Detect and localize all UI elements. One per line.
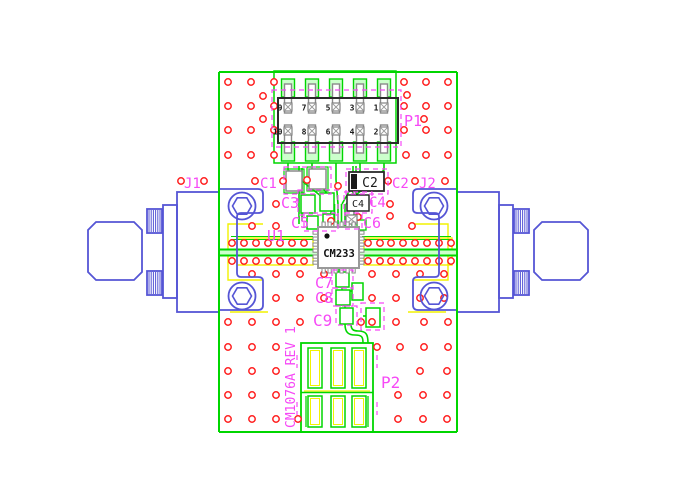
via [421, 344, 427, 350]
via [225, 127, 231, 133]
via [273, 344, 279, 350]
p1-pin-number: 3 [350, 104, 355, 113]
via [304, 177, 310, 183]
via [388, 240, 394, 246]
via [248, 127, 254, 133]
via [420, 416, 426, 422]
c3-pad-1 [301, 195, 315, 213]
via [442, 178, 448, 184]
label-j2: J2 [419, 176, 436, 192]
via [420, 392, 426, 398]
via [273, 368, 279, 374]
via [400, 258, 406, 264]
via [395, 416, 401, 422]
via [424, 240, 430, 246]
label-u1: U1 [267, 227, 285, 245]
via [248, 152, 254, 158]
label-p1: P1 [404, 112, 422, 130]
via [271, 79, 277, 85]
via [301, 240, 307, 246]
ic-u1: CM233 [313, 222, 364, 273]
via [369, 319, 375, 325]
via [225, 368, 231, 374]
via [271, 152, 277, 158]
via [249, 319, 255, 325]
via [260, 93, 266, 99]
label-c9: C9 [313, 311, 332, 330]
via [444, 392, 450, 398]
via [369, 295, 375, 301]
via [393, 319, 399, 325]
via [365, 258, 371, 264]
label-c5: C5 [291, 214, 309, 232]
via [297, 271, 303, 277]
via [265, 258, 271, 264]
via [241, 240, 247, 246]
via [387, 201, 393, 207]
j1-thread-texture [149, 210, 160, 294]
via [387, 213, 393, 219]
p1-pin-number: 4 [350, 128, 355, 137]
via [423, 127, 429, 133]
via [409, 223, 415, 229]
via [273, 392, 279, 398]
via [400, 240, 406, 246]
aux-pad-1 [352, 283, 363, 300]
label-c6: C6 [363, 214, 381, 232]
via [225, 79, 231, 85]
via [377, 258, 383, 264]
via [225, 392, 231, 398]
via [273, 201, 279, 207]
via [289, 258, 295, 264]
j1-step [163, 205, 177, 298]
j1-nut [88, 222, 142, 280]
via [241, 258, 247, 264]
via [412, 258, 418, 264]
c9-pad [340, 308, 353, 324]
p1-pin-number: 2 [374, 128, 379, 137]
via [280, 178, 286, 184]
via [249, 368, 255, 374]
via [388, 258, 394, 264]
via [229, 240, 235, 246]
via [289, 240, 295, 246]
via [423, 103, 429, 109]
via [225, 344, 231, 350]
c8-pad [336, 290, 350, 305]
ic-marking: CM233 [323, 248, 355, 260]
via [444, 416, 450, 422]
via [401, 103, 407, 109]
p1-pin-number: 10 [273, 128, 283, 137]
c1-pad-1 [286, 171, 302, 191]
via [248, 103, 254, 109]
via [253, 258, 259, 264]
via [201, 178, 207, 184]
pcb-cad-drawing: 91078563412 C2 C4 CM233 [0, 0, 700, 500]
c2-chip-marking: C2 [362, 176, 378, 191]
p1-pin-number: 8 [302, 128, 307, 137]
via [444, 368, 450, 374]
label-c3: C3 [281, 194, 299, 212]
via [445, 152, 451, 158]
via [424, 258, 430, 264]
via [395, 392, 401, 398]
via [301, 258, 307, 264]
via [374, 344, 380, 350]
via [421, 319, 427, 325]
via [445, 319, 451, 325]
label-j1: J1 [184, 176, 201, 192]
via [277, 258, 283, 264]
via [369, 271, 375, 277]
via [423, 79, 429, 85]
j2-thread-texture [516, 210, 527, 294]
via [225, 416, 231, 422]
via [273, 319, 279, 325]
p2-pad-block [301, 343, 373, 432]
label-p2: P2 [381, 373, 400, 392]
via [401, 79, 407, 85]
via [445, 127, 451, 133]
c2-polarity-band [351, 174, 357, 189]
via [273, 295, 279, 301]
via [448, 258, 454, 264]
via [441, 271, 447, 277]
via [249, 344, 255, 350]
via [249, 223, 255, 229]
via [248, 79, 254, 85]
c1-pad-2 [309, 169, 326, 189]
p1-pin-number: 1 [374, 104, 379, 113]
via [252, 178, 258, 184]
via [423, 152, 429, 158]
via [253, 240, 259, 246]
via [417, 368, 423, 374]
via [404, 92, 410, 98]
label-c2: C2 [392, 176, 409, 192]
via [249, 392, 255, 398]
via [445, 79, 451, 85]
via [377, 240, 383, 246]
via [445, 103, 451, 109]
via [297, 295, 303, 301]
via [365, 240, 371, 246]
label-c4: C4 [369, 195, 386, 211]
via [273, 271, 279, 277]
p1-pin-number: 6 [326, 128, 331, 137]
pin1-dot-icon [324, 233, 329, 238]
via [393, 271, 399, 277]
via [229, 258, 235, 264]
j2-step [499, 205, 513, 298]
via [393, 295, 399, 301]
c4-chip-marking: C4 [352, 199, 364, 210]
via [445, 344, 451, 350]
via [249, 416, 255, 422]
via [225, 152, 231, 158]
c7-pad [336, 272, 349, 287]
via [412, 240, 418, 246]
via [225, 319, 231, 325]
p1-pin-number: 5 [326, 104, 331, 113]
c3-pad-2 [320, 193, 334, 211]
label-c1: C1 [260, 176, 277, 192]
via [260, 116, 266, 122]
via [297, 319, 303, 325]
p1-pin-number: 9 [278, 104, 283, 113]
board-rev-text: CM1076A REV 1 [284, 326, 299, 428]
via [403, 152, 409, 158]
j2-flange [457, 192, 499, 312]
via [397, 344, 403, 350]
via [448, 240, 454, 246]
j2-nut [534, 222, 588, 280]
pcb-canvas: 91078563412 C2 C4 CM233 [0, 0, 700, 500]
label-c8: C8 [315, 289, 333, 307]
via [412, 178, 418, 184]
j1-flange [177, 192, 219, 312]
via [335, 183, 341, 189]
via [273, 416, 279, 422]
via [225, 103, 231, 109]
p1-pin-number: 7 [302, 104, 307, 113]
